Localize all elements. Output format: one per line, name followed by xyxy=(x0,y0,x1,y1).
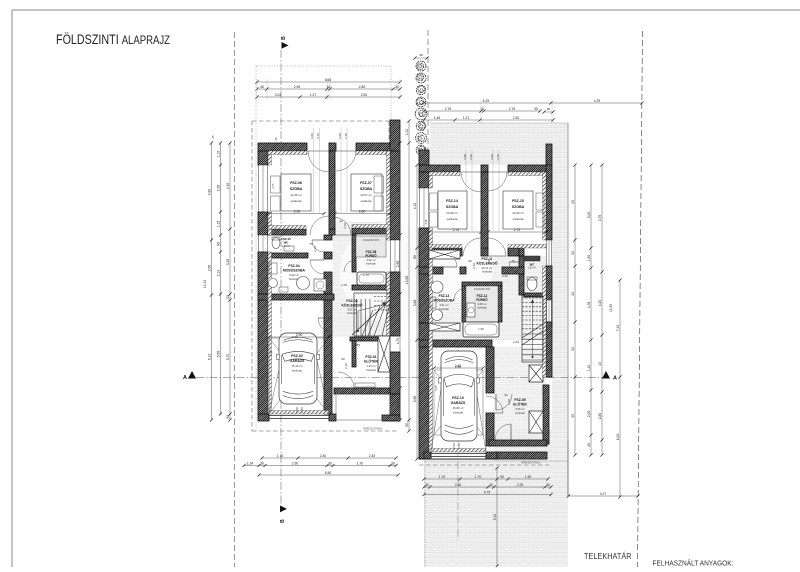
svg-text:85: 85 xyxy=(217,242,221,246)
svg-text:FSZ-14: FSZ-14 xyxy=(446,199,458,203)
svg-text:7,10: 7,10 xyxy=(616,325,620,332)
svg-text:2,70: 2,70 xyxy=(344,133,348,139)
svg-text:4,91 m²: 4,91 m² xyxy=(439,303,448,307)
svg-text:1,00: 1,00 xyxy=(338,133,342,139)
svg-text:30: 30 xyxy=(571,414,575,418)
svg-text:B: B xyxy=(280,519,286,523)
svg-text:10,99 m²: 10,99 m² xyxy=(446,211,458,215)
svg-text:2.75: 2.75 xyxy=(445,107,452,111)
svg-text:2,80: 2,80 xyxy=(598,413,602,420)
svg-text:burkolat: burkolat xyxy=(347,311,357,315)
svg-text:2,70: 2,70 xyxy=(496,154,500,160)
svg-text:4,78: 4,78 xyxy=(587,302,591,309)
svg-text:FSZ-15: FSZ-15 xyxy=(512,199,524,203)
svg-text:A: A xyxy=(183,375,187,381)
svg-text:4.27: 4.27 xyxy=(600,492,607,496)
svg-text:5.75: 5.75 xyxy=(484,491,491,495)
svg-text:30: 30 xyxy=(260,462,264,466)
svg-text:90: 90 xyxy=(504,393,508,397)
svg-text:6,00: 6,00 xyxy=(616,434,620,441)
svg-text:1.45: 1.45 xyxy=(434,116,441,120)
svg-text:7,33 m²: 7,33 m² xyxy=(366,364,375,368)
svg-text:13,85: 13,85 xyxy=(405,276,409,285)
svg-text:MOSÓSZOBA: MOSÓSZOBA xyxy=(434,298,456,303)
svg-text:1.10: 1.10 xyxy=(405,129,409,136)
svg-text:4,25 m²: 4,25 m² xyxy=(477,302,486,306)
svg-text:2.75: 2.75 xyxy=(453,228,460,232)
svg-text:FÜRDÕ: FÜRDÕ xyxy=(365,253,377,258)
svg-text:parketta: parketta xyxy=(361,199,372,203)
svg-text:burkolat: burkolat xyxy=(477,306,487,310)
svg-text:6.25: 6.25 xyxy=(483,99,490,103)
svg-text:SZOBA: SZOBA xyxy=(446,205,459,209)
svg-text:4,20: 4,20 xyxy=(598,300,602,307)
svg-text:parketta: parketta xyxy=(291,199,302,203)
svg-text:GARÁZS: GARÁZS xyxy=(290,358,305,363)
svg-text:75: 75 xyxy=(309,242,313,246)
svg-text:KÖZLEKEDÕ: KÖZLEKEDÕ xyxy=(342,303,363,308)
svg-text:1.70: 1.70 xyxy=(357,462,364,466)
svg-text:1.90: 1.90 xyxy=(525,475,532,479)
svg-text:2,10: 2,10 xyxy=(472,263,476,269)
svg-text:4.15: 4.15 xyxy=(413,203,417,210)
svg-text:30: 30 xyxy=(534,107,538,111)
svg-text:1.10: 1.10 xyxy=(217,151,221,158)
svg-text:1.70: 1.70 xyxy=(277,454,284,458)
svg-text:GARÁZS: GARÁZS xyxy=(451,400,466,405)
svg-text:75: 75 xyxy=(511,259,515,263)
svg-text:2.80: 2.80 xyxy=(359,210,366,214)
svg-text:2,10: 2,10 xyxy=(344,363,348,369)
svg-text:10,71 m²: 10,71 m² xyxy=(482,266,493,270)
svg-text:2,50: 2,50 xyxy=(300,407,304,413)
svg-text:2.90: 2.90 xyxy=(296,333,303,337)
svg-text:6.10: 6.10 xyxy=(208,354,212,361)
svg-text:SZOBA: SZOBA xyxy=(360,187,373,191)
svg-text:16,10 m²: 16,10 m² xyxy=(291,364,302,368)
svg-text:45: 45 xyxy=(587,443,591,447)
svg-text:burkolat: burkolat xyxy=(292,369,302,373)
svg-text:50: 50 xyxy=(500,475,504,479)
svg-text:3,75: 3,75 xyxy=(598,215,602,222)
svg-text:ZUHANYZÓ: ZUHANYZÓ xyxy=(474,286,491,291)
svg-text:20: 20 xyxy=(571,200,575,204)
svg-text:30: 30 xyxy=(328,462,332,466)
svg-text:1.70: 1.70 xyxy=(439,475,446,479)
svg-text:90: 90 xyxy=(341,357,345,361)
svg-text:90: 90 xyxy=(468,259,472,263)
svg-text:parketta: parketta xyxy=(513,217,524,221)
svg-text:1.34: 1.34 xyxy=(247,462,254,466)
svg-text:90: 90 xyxy=(339,219,343,223)
svg-text:burkolat: burkolat xyxy=(515,411,525,415)
svg-text:11,90: 11,90 xyxy=(609,304,613,312)
svg-text:6.65: 6.65 xyxy=(325,78,332,82)
svg-text:FSZ-09: FSZ-09 xyxy=(514,398,525,402)
svg-text:2.85: 2.85 xyxy=(354,343,360,347)
svg-text:10,57 m²: 10,57 m² xyxy=(360,193,372,197)
svg-text:30: 30 xyxy=(226,415,230,419)
svg-text:2.80: 2.80 xyxy=(359,85,366,89)
svg-text:4.29: 4.29 xyxy=(594,99,601,103)
svg-text:1.15: 1.15 xyxy=(217,221,221,228)
svg-text:1,01 m²: 1,01 m² xyxy=(282,245,291,248)
svg-text:15: 15 xyxy=(480,107,484,111)
svg-text:13,10: 13,10 xyxy=(203,280,207,289)
svg-text:2,75: 2,75 xyxy=(272,183,275,188)
svg-text:burkolat: burkolat xyxy=(439,307,449,311)
svg-text:5,15: 5,15 xyxy=(269,350,273,356)
svg-text:1.70: 1.70 xyxy=(475,475,482,479)
svg-text:2,40: 2,40 xyxy=(502,274,508,278)
svg-text:3,75: 3,75 xyxy=(378,227,381,232)
svg-text:2,50: 2,50 xyxy=(457,443,461,449)
svg-text:2,50: 2,50 xyxy=(452,443,456,449)
svg-text:FSZ-06: FSZ-06 xyxy=(290,181,302,185)
svg-text:4,16: 4,16 xyxy=(425,219,428,224)
svg-text:1,42: 1,42 xyxy=(587,365,591,372)
svg-text:FSZ-13: FSZ-13 xyxy=(439,294,450,298)
svg-text:5.70: 5.70 xyxy=(226,354,230,361)
svg-text:2.40: 2.40 xyxy=(320,454,327,458)
svg-text:2.95: 2.95 xyxy=(396,261,400,268)
svg-text:SZOBA: SZOBA xyxy=(290,187,303,191)
svg-text:2.40: 2.40 xyxy=(369,454,376,458)
svg-text:5.95: 5.95 xyxy=(413,396,417,403)
svg-text:2.40: 2.40 xyxy=(513,340,519,344)
svg-text:1,00: 1,00 xyxy=(490,154,494,160)
svg-text:2,05: 2,05 xyxy=(587,411,591,418)
svg-text:burkolat: burkolat xyxy=(366,262,376,266)
svg-text:FSZ-07: FSZ-07 xyxy=(360,181,372,185)
svg-text:2.80: 2.80 xyxy=(455,364,462,368)
svg-text:11,06 m²: 11,06 m² xyxy=(290,193,302,197)
svg-text:FSZ-01: FSZ-01 xyxy=(365,355,376,359)
svg-text:40: 40 xyxy=(571,292,575,296)
svg-text:4.80: 4.80 xyxy=(208,189,212,196)
svg-text:FELHASZNÁLT ANYAGOK:: FELHASZNÁLT ANYAGOK: xyxy=(653,559,734,568)
svg-text:2.35: 2.35 xyxy=(217,185,221,192)
svg-text:1,00: 1,00 xyxy=(310,133,314,139)
svg-text:30: 30 xyxy=(546,483,550,487)
svg-text:1.60: 1.60 xyxy=(396,401,400,408)
svg-text:10,50 m²: 10,50 m² xyxy=(512,211,524,215)
svg-text:15,89 m²: 15,89 m² xyxy=(452,406,463,410)
svg-text:5.55: 5.55 xyxy=(217,351,221,358)
svg-text:2.80: 2.80 xyxy=(455,483,462,487)
svg-text:46: 46 xyxy=(260,85,264,89)
svg-text:2.10: 2.10 xyxy=(217,270,221,277)
svg-text:burkolat: burkolat xyxy=(453,411,463,415)
svg-text:A: A xyxy=(613,376,617,382)
svg-text:30: 30 xyxy=(425,483,429,487)
svg-text:2,10: 2,10 xyxy=(343,223,347,229)
svg-text:parketta: parketta xyxy=(447,217,458,221)
svg-text:30: 30 xyxy=(226,295,230,299)
svg-text:ZUHANYZÓ: ZUHANYZÓ xyxy=(363,237,380,242)
svg-text:FSZ-04: FSZ-04 xyxy=(288,264,299,268)
svg-text:30: 30 xyxy=(391,462,395,466)
svg-text:55: 55 xyxy=(405,423,409,427)
svg-text:FÜRDÕ: FÜRDÕ xyxy=(476,297,488,302)
svg-text:5,05: 5,05 xyxy=(434,385,438,391)
svg-text:45: 45 xyxy=(274,137,278,141)
svg-text:2,10: 2,10 xyxy=(488,259,491,264)
svg-text:burkolat: burkolat xyxy=(366,368,376,372)
svg-text:SZOBA: SZOBA xyxy=(512,205,525,209)
svg-text:2.95: 2.95 xyxy=(294,85,301,89)
svg-text:MOSÓSZOBA: MOSÓSZOBA xyxy=(283,268,306,273)
svg-text:2,10: 2,10 xyxy=(313,246,317,252)
svg-text:30: 30 xyxy=(571,347,575,351)
svg-text:30: 30 xyxy=(395,85,399,89)
svg-text:1.70: 1.70 xyxy=(363,273,369,277)
svg-text:30: 30 xyxy=(419,53,423,57)
svg-text:3.25: 3.25 xyxy=(226,259,230,266)
svg-text:1,00: 1,00 xyxy=(463,154,467,160)
svg-text:2.75: 2.75 xyxy=(514,228,521,232)
svg-text:4,92 m²: 4,92 m² xyxy=(366,258,375,262)
svg-text:30: 30 xyxy=(547,107,551,111)
svg-text:4.55: 4.55 xyxy=(396,186,400,193)
svg-text:ELÕTÉR: ELÕTÉR xyxy=(513,402,527,407)
svg-text:9,52 m²: 9,52 m² xyxy=(347,308,356,312)
svg-text:burkolat: burkolat xyxy=(482,270,492,274)
svg-text:95: 95 xyxy=(413,255,417,259)
svg-text:6.50: 6.50 xyxy=(325,471,332,475)
svg-text:FSZ-02: FSZ-02 xyxy=(291,354,303,358)
svg-text:FSZ-03: FSZ-03 xyxy=(346,299,357,303)
svg-text:1.21: 1.21 xyxy=(463,116,470,120)
svg-text:5,95 m²: 5,95 m² xyxy=(515,407,524,411)
svg-text:1.27: 1.27 xyxy=(310,93,317,97)
svg-text:2,20: 2,20 xyxy=(469,154,473,160)
svg-text:2.04: 2.04 xyxy=(275,93,282,97)
svg-text:1,90: 1,90 xyxy=(587,255,591,262)
svg-text:2,20: 2,20 xyxy=(316,133,320,139)
svg-text:3.65: 3.65 xyxy=(413,300,417,307)
svg-text:1.05: 1.05 xyxy=(341,283,347,287)
svg-text:2.25: 2.25 xyxy=(517,483,524,487)
svg-text:ERESZVONAL: ERESZVONAL xyxy=(363,427,383,431)
svg-text:2.95: 2.95 xyxy=(294,210,301,214)
svg-text:4.30: 4.30 xyxy=(226,183,230,190)
svg-text:2,50: 2,50 xyxy=(295,407,299,413)
svg-text:2.75: 2.75 xyxy=(509,107,516,111)
svg-text:5.12: 5.12 xyxy=(493,514,497,521)
svg-text:ERESZVONAL: ERESZVONAL xyxy=(521,461,541,465)
svg-text:2,10: 2,10 xyxy=(507,399,511,405)
svg-text:B: B xyxy=(281,36,287,40)
svg-text:ELÕTÉR: ELÕTÉR xyxy=(364,359,378,364)
svg-text:10: 10 xyxy=(598,362,602,366)
svg-text:5,00: 5,00 xyxy=(587,212,591,219)
svg-text:FSZ-10: FSZ-10 xyxy=(452,396,464,400)
svg-text:1,51 m²: 1,51 m² xyxy=(528,267,536,270)
svg-text:2.54: 2.54 xyxy=(361,93,368,97)
svg-text:1.90: 1.90 xyxy=(478,327,484,331)
svg-text:2.90: 2.90 xyxy=(292,462,299,466)
svg-text:2.65: 2.65 xyxy=(208,265,212,272)
svg-text:TELEKHATÁR: TELEKHATÁR xyxy=(584,552,632,561)
svg-text:2.40: 2.40 xyxy=(513,116,520,120)
svg-text:30: 30 xyxy=(571,251,575,255)
svg-text:4.70: 4.70 xyxy=(396,338,400,345)
svg-text:30: 30 xyxy=(489,483,493,487)
svg-text:FÖLDSZINTI ALAPRAJZ: FÖLDSZINTI ALAPRAJZ xyxy=(56,32,170,47)
svg-text:45: 45 xyxy=(211,135,215,139)
